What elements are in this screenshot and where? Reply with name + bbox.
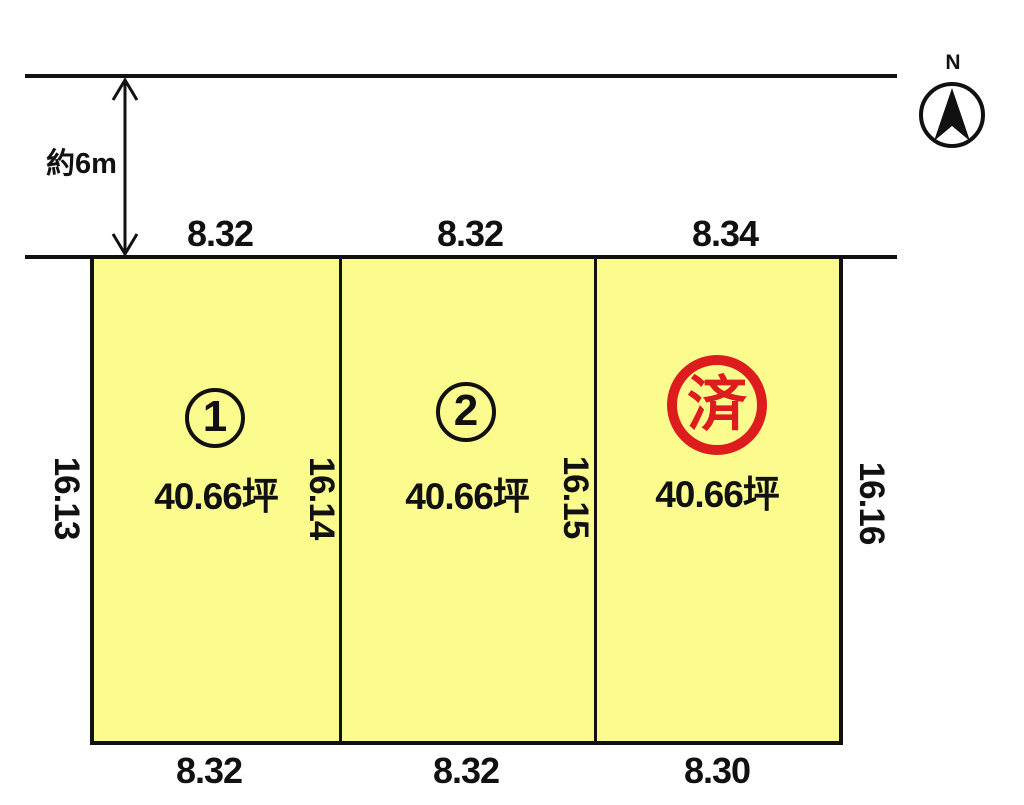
plot3-sold-badge: 済 [667, 355, 767, 455]
road-width-label: 約6m [46, 148, 117, 180]
plot3-bottom-dimension: 8.30 [617, 752, 817, 790]
plot2-area-label: 40.66坪 [347, 477, 587, 517]
plot2-number-badge: 2 [436, 382, 496, 442]
road-upper-edge-line [25, 74, 897, 78]
plot3-sold-label: 済 [687, 375, 747, 435]
plot2-bottom-dimension: 8.32 [366, 752, 566, 790]
plot3-right-dimension: 16.16 [853, 462, 889, 545]
plot2-top-dimension: 8.32 [370, 215, 570, 253]
land-plot-diagram: 約6m N 8.32 8.32 8.34 8.32 8.32 8.30 16.1… [0, 0, 1024, 805]
plot1-number-badge: 1 [185, 388, 245, 448]
left-boundary-dimension: 16.13 [48, 457, 84, 540]
plot1-area-label: 40.66坪 [96, 477, 336, 517]
plot1-bottom-dimension: 8.32 [109, 752, 309, 790]
plot2-number: 2 [454, 386, 478, 436]
plot3-top-dimension: 8.34 [625, 215, 825, 253]
plot1-number: 1 [203, 392, 227, 442]
compass-north-label: N [934, 52, 972, 74]
north-compass-icon [919, 82, 985, 148]
plot3-area-label: 40.66坪 [597, 475, 837, 515]
plot1-top-dimension: 8.32 [120, 215, 320, 253]
